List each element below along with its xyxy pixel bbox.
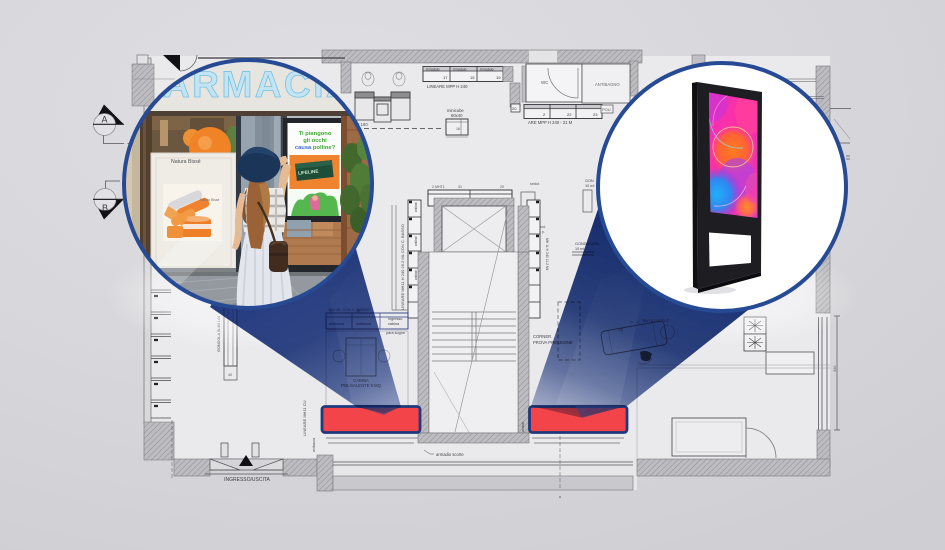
svg-text:16: 16: [456, 127, 460, 131]
svg-text:para sogno: para sogno: [386, 331, 405, 335]
svg-text:Natura Bissé: Natura Bissé: [200, 198, 220, 202]
svg-text:GON: GON: [585, 179, 594, 183]
svg-text:60x40: 60x40: [451, 113, 463, 118]
svg-text:antibat: antibat: [414, 236, 418, 246]
svg-text:WC: WC: [541, 80, 548, 85]
svg-text:antibat.: antibat.: [521, 421, 525, 432]
svg-text:19: 19: [496, 75, 501, 80]
svg-text:LINEARE MPP H 240: LINEARE MPP H 240: [427, 84, 468, 89]
svg-text:2 MHT1: 2 MHT1: [432, 185, 445, 189]
svg-text:340: 340: [833, 366, 837, 372]
svg-text:MH 11 H 240 11.2 ML: MH 11 H 240 11.2 ML: [545, 238, 549, 271]
svg-text:armadio scorte: armadio scorte: [436, 452, 464, 457]
svg-text:CORNER: CORNER: [533, 334, 551, 339]
svg-text:gli occhi: gli occhi: [303, 138, 327, 144]
svg-text:causa polline?: causa polline?: [295, 145, 336, 151]
svg-text:il modulo: il modulo: [480, 68, 494, 72]
svg-text:22: 22: [567, 112, 572, 117]
svg-text:31: 31: [458, 185, 462, 189]
svg-text:INGRESSO/USCITA: INGRESSO/USCITA: [224, 477, 270, 483]
svg-text:10 ml: 10 ml: [585, 184, 594, 188]
svg-text:23: 23: [593, 112, 598, 117]
svg-text:ingresso: ingresso: [388, 317, 402, 321]
svg-text:LINEARE MH11 H 240 25.2 ML CO: LINEARE MH11 H 240 25.2 ML CON C. BASSO: [400, 224, 405, 310]
svg-text:Ti piangono: Ti piangono: [299, 131, 332, 137]
svg-text:LINEARE MH11 CU: LINEARE MH11 CU: [302, 400, 307, 436]
svg-text:17: 17: [443, 75, 448, 80]
svg-text:A: A: [101, 115, 107, 125]
svg-text:il modulo: il modulo: [426, 68, 440, 72]
svg-text:B: B: [102, 203, 108, 213]
svg-text:POU: POU: [602, 107, 611, 112]
svg-text:ARE MPP H 240 - 21 M: ARE MPP H 240 - 21 M: [528, 120, 573, 125]
svg-text:antibat: antibat: [414, 202, 418, 212]
svg-text:antibat: antibat: [414, 270, 418, 280]
svg-text:10 ml: 10 ml: [575, 247, 584, 251]
svg-text:15: 15: [470, 75, 475, 80]
svg-text:Natura Bissé: Natura Bissé: [171, 159, 201, 165]
svg-text:ANTIBAGNO: ANTIBAGNO: [595, 82, 620, 87]
svg-text:20: 20: [500, 185, 504, 189]
svg-text:cabina: cabina: [388, 322, 400, 326]
svg-text:20: 20: [512, 106, 517, 111]
svg-text:il modulo: il modulo: [453, 68, 467, 72]
svg-text:40: 40: [228, 373, 232, 377]
svg-text:sedut: sedut: [530, 182, 540, 186]
svg-text:antibaura: antibaura: [312, 438, 316, 452]
